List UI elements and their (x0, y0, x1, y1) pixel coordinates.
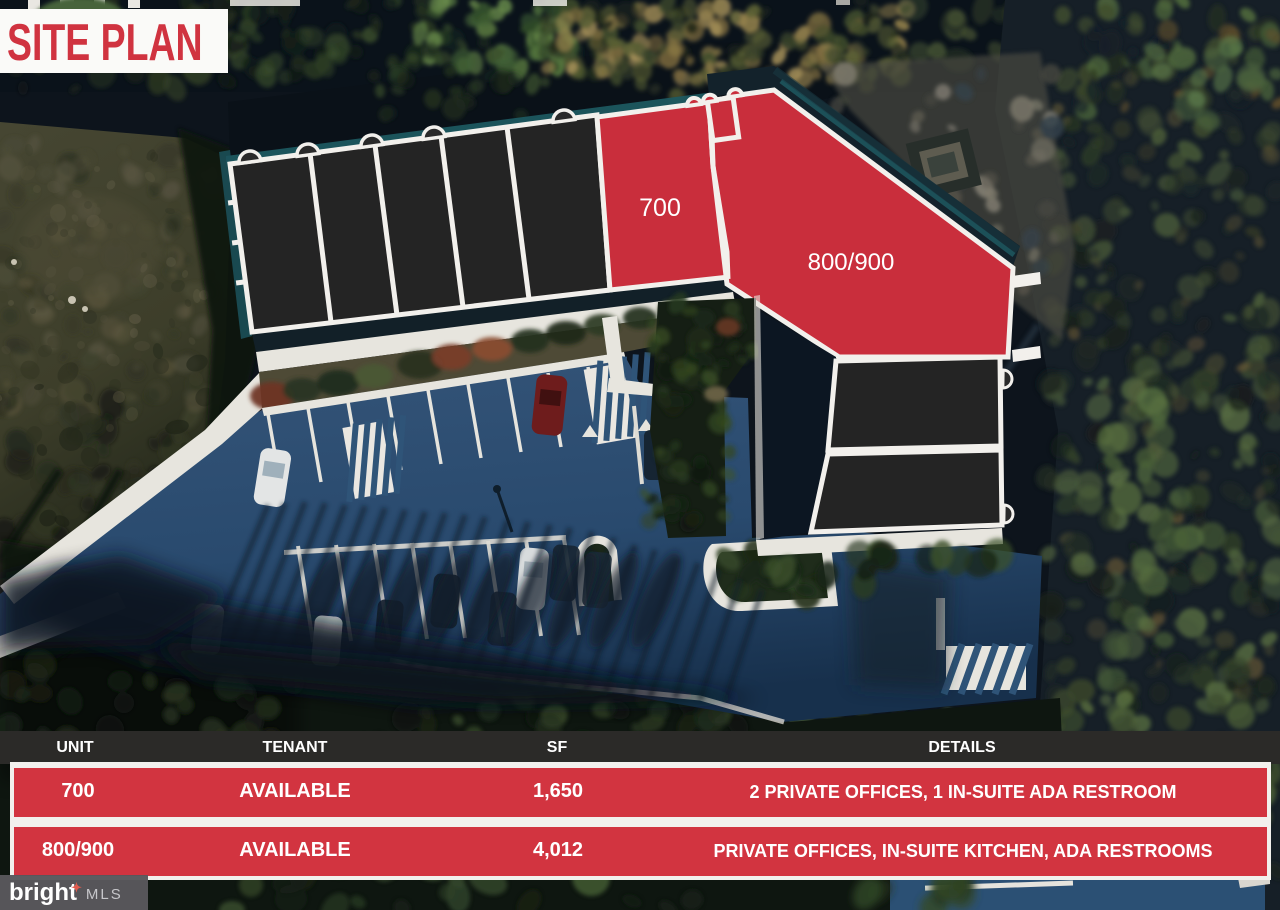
svg-text:700: 700 (639, 194, 681, 222)
svg-text:800/900: 800/900 (808, 249, 895, 276)
